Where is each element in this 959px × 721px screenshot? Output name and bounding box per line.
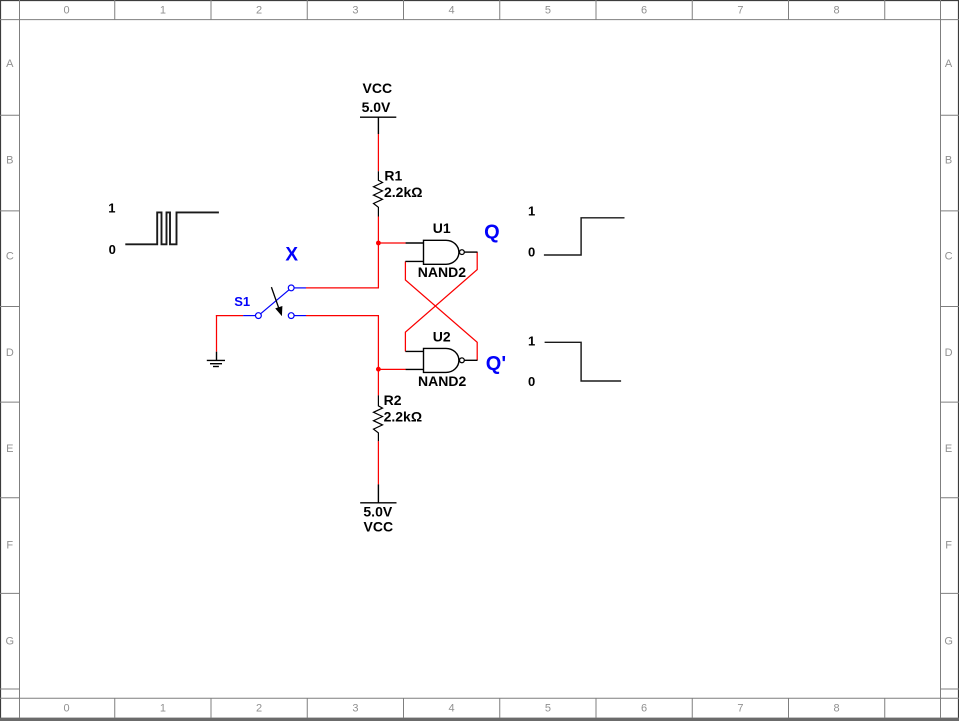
svg-text:G: G — [6, 636, 15, 648]
svg-text:3: 3 — [352, 5, 358, 17]
svg-text:1: 1 — [528, 203, 535, 218]
svg-text:0: 0 — [64, 703, 70, 715]
svg-text:R2: R2 — [384, 392, 402, 408]
svg-text:0: 0 — [109, 242, 116, 257]
svg-text:B: B — [945, 155, 952, 167]
svg-text:3: 3 — [352, 703, 358, 715]
svg-text:F: F — [6, 539, 13, 551]
svg-text:VCC: VCC — [363, 80, 393, 96]
svg-text:C: C — [945, 251, 953, 263]
svg-text:U2: U2 — [433, 328, 451, 344]
svg-text:R1: R1 — [384, 168, 402, 184]
svg-text:6: 6 — [641, 5, 647, 17]
svg-text:U1: U1 — [433, 220, 451, 236]
svg-text:C: C — [6, 251, 14, 263]
svg-text:A: A — [6, 58, 14, 70]
svg-text:5: 5 — [545, 703, 551, 715]
svg-text:E: E — [6, 443, 13, 455]
svg-text:F: F — [945, 539, 952, 551]
svg-text:5: 5 — [545, 5, 551, 17]
svg-text:S1: S1 — [234, 294, 250, 309]
svg-text:4: 4 — [449, 5, 455, 17]
svg-text:NAND2: NAND2 — [418, 373, 466, 389]
svg-text:6: 6 — [641, 703, 647, 715]
svg-text:7: 7 — [737, 703, 743, 715]
svg-text:Q: Q — [484, 221, 500, 243]
svg-text:X: X — [285, 245, 298, 266]
svg-text:1: 1 — [108, 201, 115, 216]
svg-text:0: 0 — [64, 5, 70, 17]
svg-text:4: 4 — [449, 703, 455, 715]
svg-text:0: 0 — [528, 245, 535, 260]
svg-text:8: 8 — [834, 703, 840, 715]
svg-text:1: 1 — [160, 703, 166, 715]
svg-text:Q': Q' — [486, 353, 506, 375]
svg-text:B: B — [6, 155, 13, 167]
svg-text:5.0V: 5.0V — [362, 99, 391, 115]
svg-text:2: 2 — [256, 5, 262, 17]
svg-text:2.2kΩ: 2.2kΩ — [384, 184, 422, 200]
svg-text:G: G — [944, 636, 953, 648]
svg-text:2.2kΩ: 2.2kΩ — [384, 408, 422, 424]
svg-text:7: 7 — [737, 5, 743, 17]
svg-text:1: 1 — [528, 333, 535, 348]
svg-text:NAND2: NAND2 — [418, 264, 466, 280]
svg-text:E: E — [945, 443, 952, 455]
svg-text:0: 0 — [528, 374, 535, 389]
svg-text:D: D — [6, 347, 14, 359]
svg-text:1: 1 — [160, 5, 166, 17]
svg-text:D: D — [945, 347, 953, 359]
svg-text:8: 8 — [834, 5, 840, 17]
svg-text:A: A — [945, 58, 953, 70]
svg-text:5.0V: 5.0V — [363, 503, 392, 519]
svg-text:2: 2 — [256, 703, 262, 715]
svg-text:VCC: VCC — [364, 519, 394, 535]
